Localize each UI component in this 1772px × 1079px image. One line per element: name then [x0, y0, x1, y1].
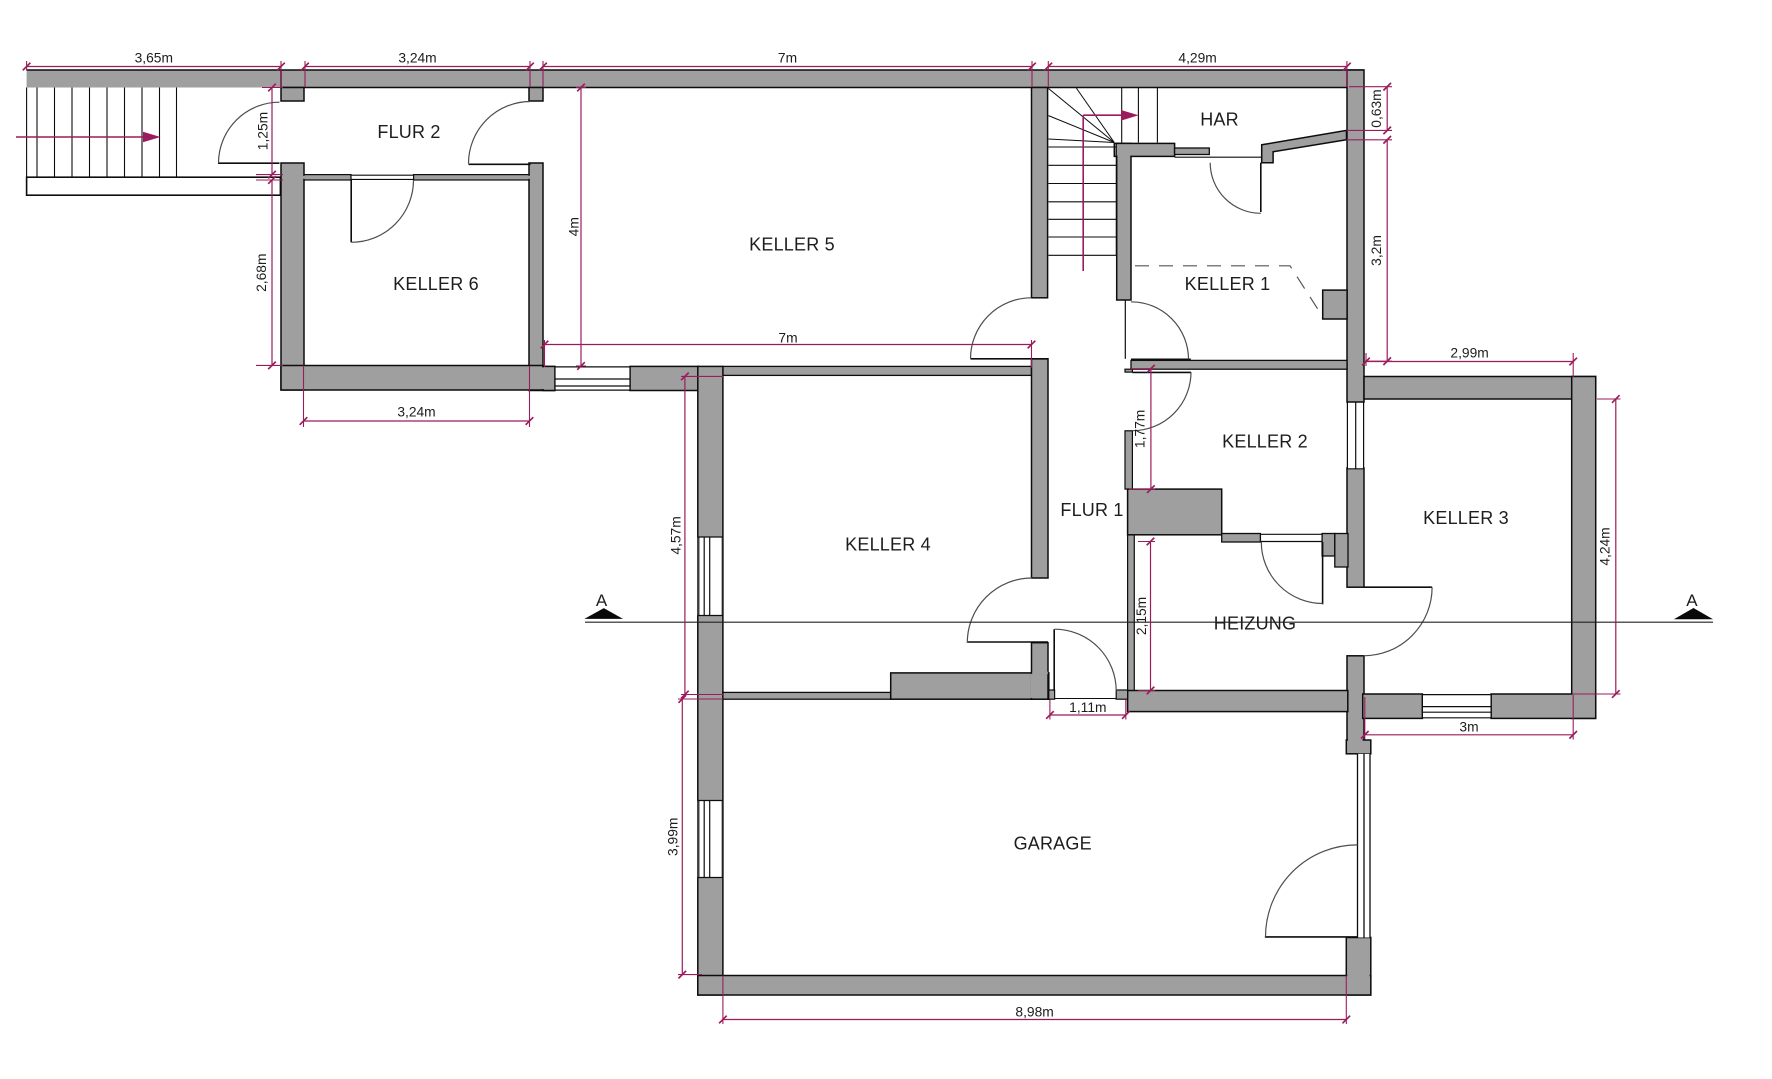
- svg-text:3,99m: 3,99m: [666, 818, 681, 856]
- svg-text:1,11m: 1,11m: [1069, 700, 1106, 715]
- svg-text:4m: 4m: [567, 217, 582, 236]
- svg-text:7m: 7m: [778, 51, 797, 66]
- svg-text:4,57m: 4,57m: [669, 516, 684, 554]
- svg-text:0,63m: 0,63m: [1369, 89, 1384, 127]
- svg-text:KELLER 2: KELLER 2: [1222, 431, 1308, 451]
- svg-text:2,15m: 2,15m: [1134, 597, 1149, 635]
- svg-text:HEIZUNG: HEIZUNG: [1214, 613, 1296, 633]
- svg-text:4,29m: 4,29m: [1178, 51, 1216, 66]
- svg-text:KELLER 3: KELLER 3: [1423, 508, 1509, 528]
- svg-text:KELLER 5: KELLER 5: [749, 234, 835, 254]
- svg-text:3,2m: 3,2m: [1369, 235, 1384, 266]
- svg-text:3,24m: 3,24m: [398, 51, 436, 66]
- svg-text:2,68m: 2,68m: [254, 254, 269, 292]
- svg-text:1,25m: 1,25m: [256, 112, 271, 150]
- svg-text:KELLER 6: KELLER 6: [393, 274, 479, 294]
- svg-text:GARAGE: GARAGE: [1014, 833, 1092, 853]
- svg-text:3,24m: 3,24m: [397, 405, 435, 420]
- svg-text:KELLER 4: KELLER 4: [845, 534, 931, 554]
- svg-text:A: A: [1686, 591, 1698, 610]
- svg-text:3,65m: 3,65m: [135, 51, 173, 66]
- svg-text:HAR: HAR: [1200, 110, 1239, 130]
- svg-text:2,99m: 2,99m: [1450, 346, 1488, 361]
- svg-text:KELLER 1: KELLER 1: [1185, 274, 1271, 294]
- svg-text:3m: 3m: [1459, 720, 1478, 735]
- svg-text:FLUR 2: FLUR 2: [377, 122, 440, 142]
- svg-text:7m: 7m: [778, 331, 797, 346]
- svg-text:A: A: [596, 591, 608, 610]
- svg-text:FLUR 1: FLUR 1: [1060, 500, 1123, 520]
- svg-text:8,98m: 8,98m: [1015, 1005, 1053, 1020]
- svg-text:4,24m: 4,24m: [1598, 527, 1613, 565]
- svg-text:1,77m: 1,77m: [1133, 410, 1148, 448]
